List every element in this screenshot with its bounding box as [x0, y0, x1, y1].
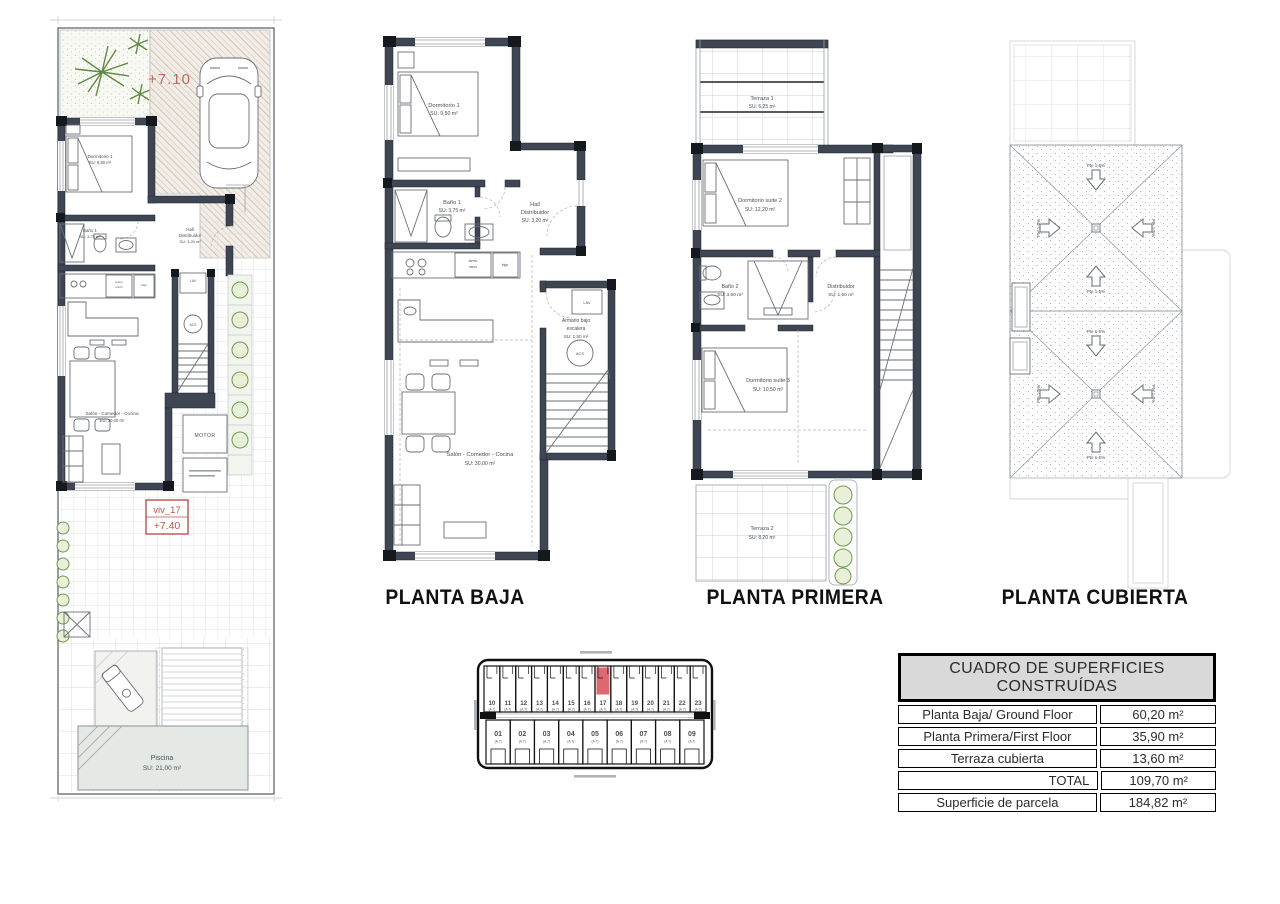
keyplan-unit: 02(A.7) [510, 720, 534, 764]
unit-sublabel: (A.7) [495, 740, 502, 744]
stairs [880, 268, 913, 468]
stairs [546, 370, 610, 453]
car-icon [197, 58, 261, 188]
keyplan-unit: 14(A.7) [547, 666, 563, 712]
site-plan: +7.10 [50, 6, 282, 800]
living-room: Salón - Comedor - Cocina SU: 30,00 m² [394, 255, 532, 546]
room-area: SU: 1,60 m² [828, 292, 854, 298]
landing: Distribuidor SU: 1,60 m² [827, 284, 854, 298]
table-row: Planta Primera/First Floor 35,90 m² [898, 727, 1216, 746]
unit-number: 10 [488, 700, 495, 707]
keyplan-unit: 06(A.7) [607, 720, 631, 764]
keyplan-unit: 15(A.7) [563, 666, 579, 712]
room-area: SU: 9,50 m² [89, 160, 112, 165]
decking [156, 648, 248, 728]
appliance-label: ACS [576, 351, 585, 356]
roof-terrace-outline [1010, 41, 1135, 145]
room-name: Dormitorio 1 [428, 103, 460, 109]
unit-sublabel: (A.7) [543, 740, 550, 744]
keyplan-unit: 17(A.7) [595, 666, 611, 712]
unit-sublabel: (A.7) [599, 708, 606, 712]
room-area: SU: 3,60 m² [717, 292, 743, 298]
table-row: Terraza cubierta 13,60 m² [898, 749, 1216, 768]
unit-tag: viv_17 +7.40 [146, 500, 188, 534]
drawing-sheet: +7.10 [0, 0, 1280, 904]
unit-sublabel: (A.7) [584, 708, 591, 712]
level-mark-top: +7.10 [148, 71, 191, 88]
unit-number: 05 [591, 731, 599, 738]
unit-number: 14 [552, 700, 559, 707]
keyplan-unit: 18(A.7) [611, 666, 627, 712]
keyplan-unit: 20(A.7) [643, 666, 659, 712]
row-label: Superficie de parcela [898, 793, 1097, 812]
room-name: Distribuidor [827, 284, 854, 290]
kitchen: termo micro frigo [392, 252, 520, 366]
row-divider [480, 712, 710, 719]
room-name: Salón - Comedor - Cocina [85, 411, 139, 416]
room-name: Distribuidor [179, 233, 202, 238]
room-area: SU: 8,20 m² [749, 535, 776, 541]
slope-label: Pte 1-5% [1151, 219, 1156, 237]
room-name: Baño 1 [443, 200, 461, 206]
unit-number: 02 [518, 731, 526, 738]
room-name: Armario bajo [562, 318, 591, 324]
keyplan-unit: 03(A.7) [534, 720, 558, 764]
appliance-label: micro [115, 285, 122, 289]
pool: Piscina SU: 21,00 m² [78, 726, 248, 790]
appliance-label: LAV [583, 300, 591, 305]
title-planta-cubierta: PLANTA CUBIERTA [994, 586, 1196, 610]
unit-id: viv_17 [153, 505, 180, 516]
pool-name: Piscina [151, 755, 174, 762]
appliance-label: LAV [190, 279, 197, 283]
appliance-label: termo [115, 280, 123, 284]
window [693, 145, 818, 478]
slope-label: Pte 1-5% [1087, 289, 1105, 294]
keyplan-unit: 09(A.7) [680, 720, 704, 764]
planta-baja-plan: Dormitorio 1 SU: 9,50 m² Baño 1 SU: 3,75… [380, 30, 618, 570]
room-name: escalera [567, 326, 586, 332]
room-area: SU: 10,50 m² [753, 387, 784, 393]
window [385, 38, 585, 560]
unit-number: 15 [568, 700, 575, 707]
room-area: SU: 6,25 m² [749, 104, 776, 110]
unit-number: 19 [631, 700, 638, 707]
unit-sublabel: (A.7) [663, 708, 670, 712]
keyplan-unit: 21(A.7) [658, 666, 674, 712]
room-name: Hall [530, 202, 540, 208]
room-area: SU: 30,00 m² [100, 418, 125, 423]
room-name: Dormitorio suite 3 [746, 378, 790, 384]
unit-sublabel: (A.7) [552, 708, 559, 712]
unit-number: 01 [494, 731, 502, 738]
keyplan-unit: 04(A.7) [559, 720, 583, 764]
table-row: Superficie de parcela 184,82 m² [898, 793, 1216, 812]
unit-number: 17 [599, 700, 606, 707]
key-plan: 10(A.7)11(A.7)12(A.7)13(A.7)14(A.7)15(A.… [476, 648, 714, 783]
keyplan-unit: 05(A.7) [583, 720, 607, 764]
unit-sublabel: (A.7) [647, 708, 654, 712]
table-row: Planta Baja/ Ground Floor 60,20 m² [898, 705, 1216, 724]
planta-primera-plan: Terraza 1 SU: 6,25 m² [688, 30, 930, 570]
room-name: Dormitorio suite 2 [738, 198, 782, 204]
planter-hedge [829, 480, 857, 585]
unit-number: 06 [615, 731, 623, 738]
unit-number: 21 [663, 700, 670, 707]
keyplan-unit: 16(A.7) [579, 666, 595, 712]
tv-unit [444, 522, 486, 538]
suite-3: Dormitorio suite 3 SU: 10,50 m² [702, 330, 868, 465]
row-value: 184,82 m² [1100, 793, 1216, 812]
terraza-2: Terraza 2 SU: 8,20 m² [696, 480, 857, 585]
unit-number: 23 [695, 700, 702, 707]
unit-number: 03 [543, 731, 551, 738]
unit-sublabel: (A.7) [631, 708, 638, 712]
keyplan-top-units: 10(A.7)11(A.7)12(A.7)13(A.7)14(A.7)15(A.… [484, 666, 706, 712]
room-name: Distribuidor [521, 210, 549, 216]
keyplan-unit: 12(A.7) [516, 666, 532, 712]
unit-sublabel: (A.7) [616, 740, 623, 744]
keyplan-unit: 19(A.7) [627, 666, 643, 712]
room-area: SU: 3,75 m² [439, 208, 466, 214]
unit-sublabel: (A.7) [640, 740, 647, 744]
unit-sublabel: (A.7) [519, 740, 526, 744]
slope-label: Pte 1-5% [1151, 385, 1156, 403]
keyplan-unit: 10(A.7) [484, 666, 500, 712]
room-area: SU: 9,50 m² [430, 111, 458, 117]
slope-label: Pte 1-5% [1087, 163, 1105, 168]
unit-number: 11 [505, 700, 512, 707]
unit-sublabel: (A.7) [592, 740, 599, 744]
row-label: Planta Baja/ Ground Floor [898, 705, 1097, 724]
room-area: SU: 3,75 m² [79, 234, 101, 239]
unit-sublabel: (A.7) [679, 708, 686, 712]
bedroom: Dormitorio 1 SU: 9,50 m² [398, 52, 478, 171]
slope-label: Pte 1-5% [1036, 219, 1041, 237]
suite-2: Dormitorio suite 2 SU: 12,20 m² [703, 158, 870, 226]
unit-sublabel: (A.7) [695, 708, 702, 712]
keyplan-unit: 22(A.7) [674, 666, 690, 712]
entrance-door-arc [547, 206, 577, 236]
unit-number: 08 [664, 731, 672, 738]
walls [691, 143, 922, 480]
unit-sublabel: (A.7) [504, 708, 511, 712]
appliance-label: micro [469, 265, 477, 269]
appliance-label: frigo [141, 283, 147, 287]
row-value: 13,60 m² [1100, 749, 1216, 768]
room-area: SU: 3,20 m² [522, 218, 549, 224]
slope-label: Pte 1-5% [1087, 455, 1105, 460]
row-label: Terraza cubierta [898, 749, 1097, 768]
unit-number: 22 [679, 700, 686, 707]
sofa [394, 485, 420, 545]
unit-number: 13 [536, 700, 543, 707]
bathroom-fixtures [60, 224, 136, 262]
keyplan-unit: 07(A.7) [631, 720, 655, 764]
room-name: Hall [186, 227, 194, 232]
terraza-1: Terraza 1 SU: 6,25 m² [696, 40, 828, 146]
appliance-label: termo [469, 259, 478, 263]
tv-unit [102, 444, 120, 474]
slope-label: Pte 1-5% [1036, 385, 1041, 403]
room-name: Salón - Comedor - Cocina [446, 452, 514, 458]
unit-sublabel: (A.7) [615, 708, 622, 712]
keyplan-unit: 23(A.7) [690, 666, 706, 712]
unit-sublabel: (A.7) [520, 708, 527, 712]
keyplan-unit: 13(A.7) [532, 666, 548, 712]
keyplan-bottom-units: 01(A.7)02(A.7)03(A.7)04(A.7)05(A.7)06(A.… [486, 720, 704, 764]
slope-label: Pte 1-5% [1087, 329, 1105, 334]
unit-number: 07 [640, 731, 648, 738]
title-planta-primera: PLANTA PRIMERA [694, 586, 896, 610]
motor-label: MOTOR [194, 433, 215, 439]
unit-level: +7.40 [154, 520, 181, 532]
stairs [178, 273, 208, 391]
unit-sublabel: (A.7) [688, 740, 695, 744]
areas-table: CUADRO DE SUPERFICIES CONSTRUÍDAS Planta… [898, 653, 1216, 815]
unit-sublabel: (A.7) [567, 740, 574, 744]
appliance-label: ACS [190, 323, 198, 327]
window [58, 118, 135, 490]
room-area: SU: 30,00 m² [465, 461, 496, 467]
unit-number: 12 [520, 700, 527, 707]
row-label: TOTAL [898, 771, 1098, 790]
unit-sublabel: (A.7) [536, 708, 543, 712]
room-area: SU: 1,50 m² [564, 334, 589, 339]
room-name: Terraza 1 [750, 96, 773, 102]
unit-number: 09 [688, 731, 696, 738]
row-value: 60,20 m² [1100, 705, 1216, 724]
room-name: Terraza 2 [750, 526, 773, 532]
hall: Hall Distribuidor SU: 3,20 m² [521, 202, 549, 224]
unit-number: 16 [584, 700, 591, 707]
keyplan-unit: 01(A.7) [486, 720, 510, 764]
unit-sublabel: (A.7) [664, 740, 671, 744]
closet-under-stairs: LAV Armario bajo escalera SU: 1,50 m² AC… [562, 290, 602, 366]
unit-sublabel: (A.7) [568, 708, 575, 712]
title-planta-baja: PLANTA BAJA [354, 586, 556, 610]
unit-number: 04 [567, 731, 575, 738]
room-name: Dormitorio 1 [87, 154, 112, 159]
room-area: SU: 3,20 m² [179, 239, 201, 244]
appliance-label: frigo [502, 263, 509, 267]
areas-table-title: CUADRO DE SUPERFICIES CONSTRUÍDAS [898, 653, 1216, 702]
room-name: Baño 2 [721, 284, 738, 290]
unit-sublabel: (A.7) [488, 708, 495, 712]
pool-area: SU: 21,00 m² [143, 765, 182, 772]
row-value: 35,90 m² [1100, 727, 1216, 746]
row-value: 109,70 m² [1101, 771, 1216, 790]
corner-block [691, 143, 922, 480]
keyplan-unit: 08(A.7) [656, 720, 680, 764]
row-label: Planta Primera/First Floor [898, 727, 1097, 746]
planta-cubierta-plan: Pte 1-5% Pte 1-5% Pte 1-5% Pte 1-5% Pte … [1000, 33, 1235, 563]
room-area: SU: 12,20 m² [745, 207, 776, 213]
bathroom-2: Baño 2 SU: 3,60 m² [700, 261, 808, 319]
keyplan-unit: 11(A.7) [500, 666, 516, 712]
unit-number: 20 [647, 700, 654, 707]
garden [60, 30, 150, 122]
room-name: Baño 1 [83, 228, 97, 233]
unit-number: 18 [615, 700, 622, 707]
sofa [63, 436, 83, 482]
table-row-total: TOTAL 109,70 m² [898, 771, 1216, 790]
